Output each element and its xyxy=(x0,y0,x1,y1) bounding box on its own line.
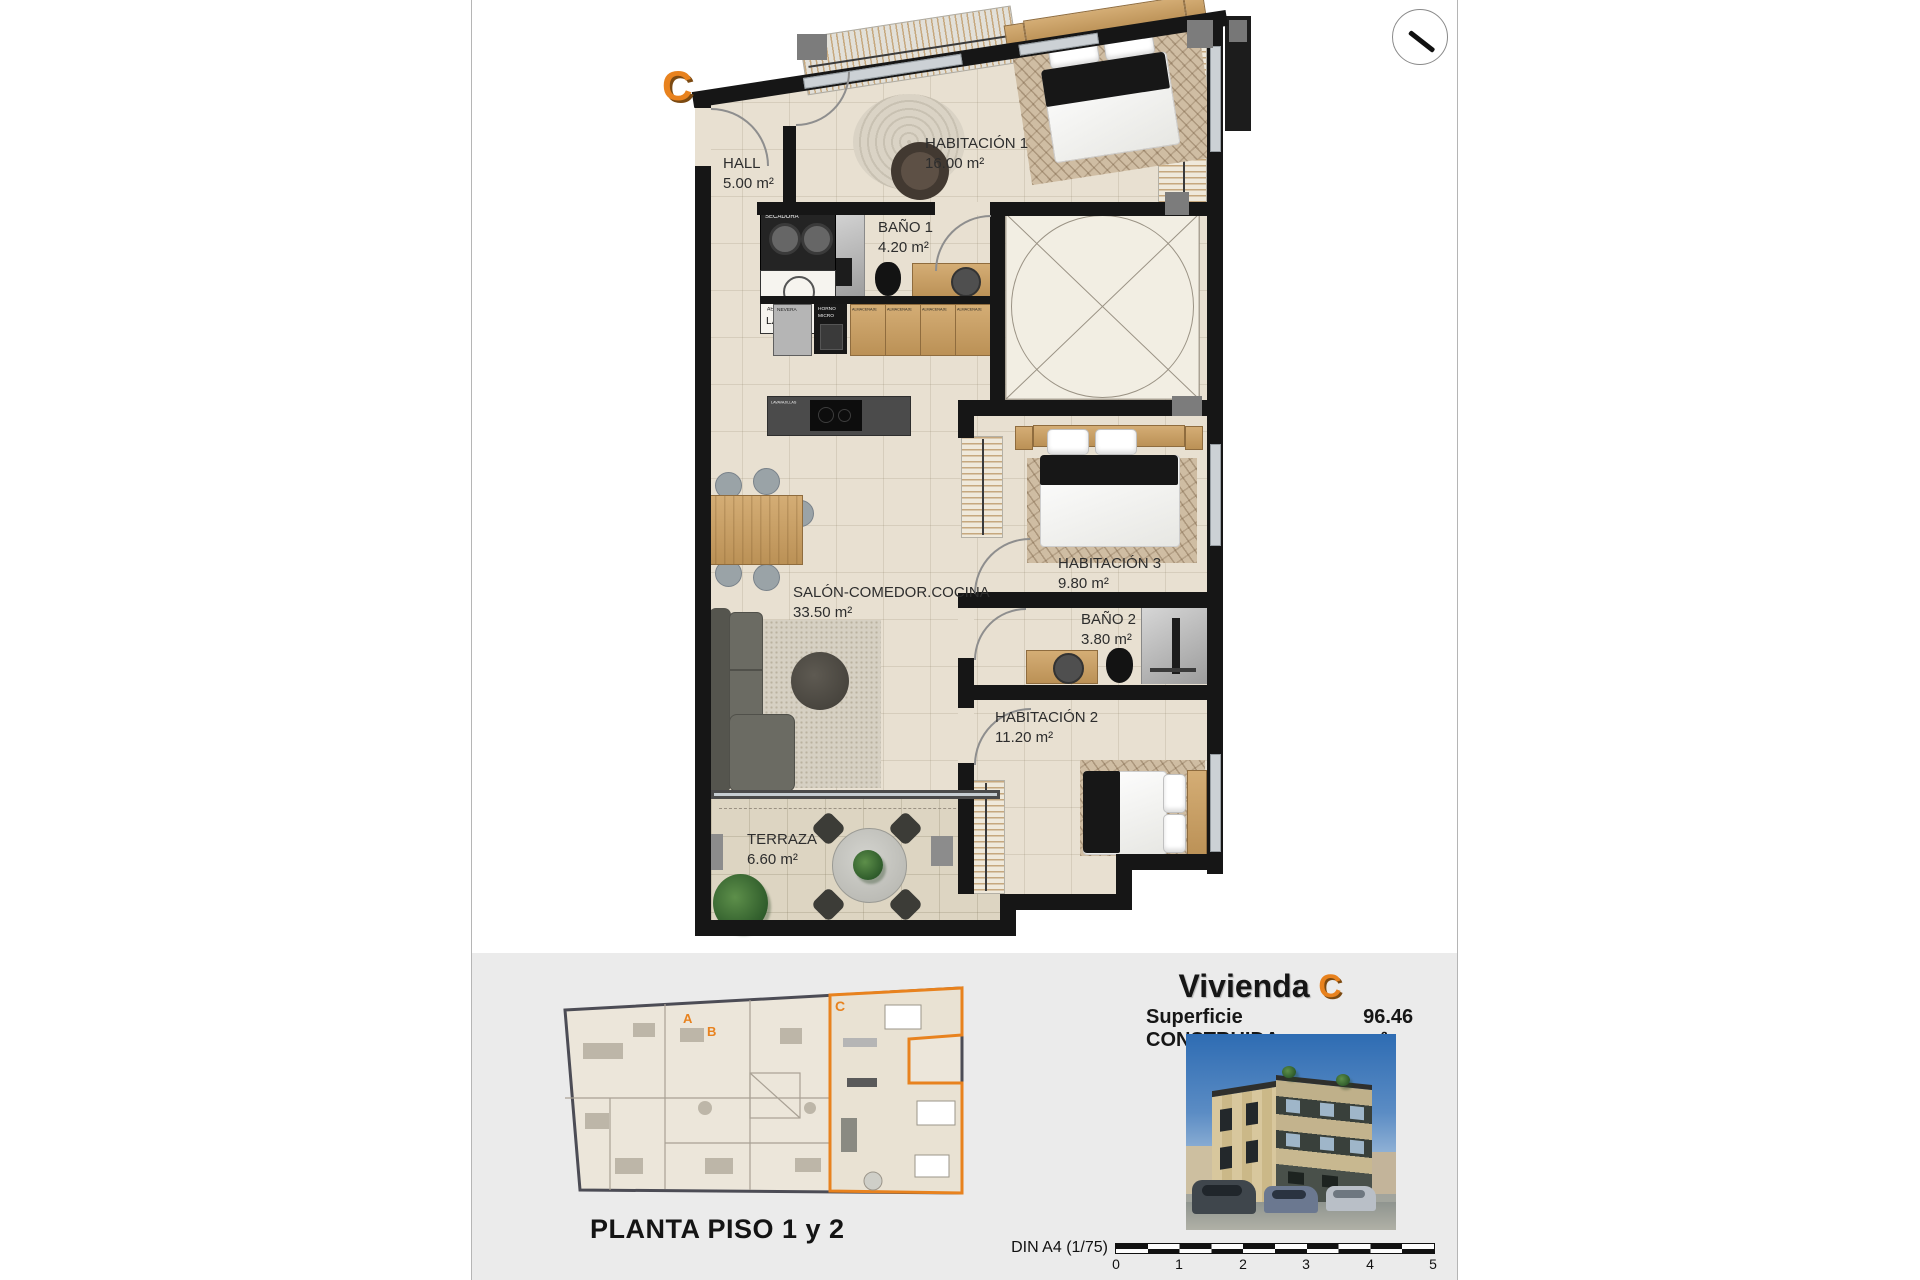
photo-window xyxy=(1246,1102,1258,1126)
table-plant xyxy=(853,850,883,880)
pillow xyxy=(1047,429,1089,455)
coffee-table xyxy=(791,652,849,710)
north-arrow-icon xyxy=(1392,9,1448,65)
photo-balcony-glass xyxy=(1350,1106,1364,1120)
oven-door xyxy=(820,324,843,350)
vivienda-title: Vivienda C xyxy=(1120,968,1400,1005)
storage-cabinet: ALMACENAJE xyxy=(850,304,886,356)
wall-right xyxy=(1207,16,1223,874)
room-label-bath2: BAÑO 2 3.80 m² xyxy=(1081,610,1136,650)
wall-bottom-right xyxy=(1116,854,1223,870)
fridge: NEVERA xyxy=(773,304,812,356)
photo-window xyxy=(1220,1146,1232,1170)
photo-balcony-glass xyxy=(1350,1140,1364,1154)
storage-label: ALMACENAJE xyxy=(852,308,877,312)
photo-balcony-glass xyxy=(1286,1133,1300,1147)
room-label-bedroom1: HABITACIÓN 1 16.00 m² xyxy=(925,134,1028,174)
terrace-glass-pane xyxy=(714,793,997,796)
wall-bath1-top xyxy=(757,202,935,215)
shower-bath2 xyxy=(1141,608,1208,684)
room-label-bedroom3: HABITACIÓN 3 9.80 m² xyxy=(1058,554,1161,594)
window-bedroom1-side xyxy=(1210,46,1221,152)
oven-label: HORNO xyxy=(818,307,836,313)
storage-label: ALMACENAJE xyxy=(887,308,912,312)
micro-label: MICRO xyxy=(818,314,834,320)
unit-letter-badge: C xyxy=(662,62,692,110)
blanket-bedroom2 xyxy=(1083,771,1120,853)
pillar-top xyxy=(797,34,827,60)
terrace-glass-wall xyxy=(711,790,1000,799)
scale-tick: 3 xyxy=(1296,1256,1316,1272)
wardrobe-rail xyxy=(985,783,987,891)
wall-step-2 xyxy=(1116,854,1132,910)
shower-drain xyxy=(1150,668,1196,672)
room-area: 3.80 m² xyxy=(1081,630,1136,650)
stair-core-outside xyxy=(1225,16,1251,131)
room-label-bedroom2: HABITACIÓN 2 11.20 m² xyxy=(995,708,1098,748)
scale-format-label: DIN A4 (1/75) xyxy=(992,1239,1108,1257)
dining-table xyxy=(705,495,803,565)
photo-window xyxy=(1288,1171,1304,1185)
toilet-bath1 xyxy=(875,262,901,296)
room-area: 11.20 m² xyxy=(995,728,1098,748)
scale-tick: 2 xyxy=(1233,1256,1253,1272)
sofa-chaise xyxy=(729,714,795,792)
vivienda-title-prefix: Vivienda xyxy=(1178,968,1309,1004)
pillar-patio-bottom xyxy=(1172,396,1202,416)
photo-roof-plant xyxy=(1282,1066,1296,1078)
scale-tick: 4 xyxy=(1360,1256,1380,1272)
wall-corridor-1 xyxy=(958,416,974,438)
overview-mini-plan: A B C xyxy=(555,983,975,1208)
room-name: HABITACIÓN 3 xyxy=(1058,554,1161,574)
photo-car-window xyxy=(1272,1190,1306,1199)
photo-car xyxy=(1192,1180,1256,1214)
room-name: HABITACIÓN 2 xyxy=(995,708,1098,728)
plan-sheet: C xyxy=(0,0,1920,1280)
photo-window xyxy=(1220,1108,1232,1132)
stair-landing xyxy=(1229,20,1247,42)
scale-bar xyxy=(1115,1243,1435,1254)
induction-hob xyxy=(810,400,862,431)
photo-balcony-glass xyxy=(1320,1137,1334,1151)
wall-kitchen-back xyxy=(760,296,995,304)
bath1-door-opening xyxy=(935,202,990,215)
photo-car-window xyxy=(1333,1190,1365,1198)
photo-roof-plant xyxy=(1336,1074,1350,1086)
nightstand xyxy=(1015,426,1033,450)
room-name: TERRAZA xyxy=(747,830,817,850)
headboard-bedroom2 xyxy=(1187,770,1207,858)
north-arrow-needle xyxy=(1408,30,1436,53)
patio-void-drawing xyxy=(1005,213,1200,400)
wall-kitchen-patio xyxy=(990,202,1005,416)
wall-corridor-4 xyxy=(958,763,974,894)
patio-void xyxy=(1005,213,1200,400)
terrace-overhang-dashed xyxy=(719,808,991,809)
dining-chair xyxy=(753,468,780,495)
page-border-right xyxy=(1457,0,1458,1280)
photo-balcony-glass xyxy=(1320,1103,1334,1117)
sink-bath2 xyxy=(1053,653,1084,684)
room-label-living: SALÓN-COMEDOR.COCINA 33.50 m² xyxy=(793,583,990,623)
storage-cabinet: ALMACENAJE xyxy=(885,304,921,356)
sofa-backrest xyxy=(709,608,731,792)
hob-ring xyxy=(818,407,834,423)
room-name: BAÑO 2 xyxy=(1081,610,1136,630)
vanity-bath2 xyxy=(1026,650,1098,684)
blanket-bedroom3 xyxy=(1040,455,1178,485)
overview-caption: PLANTA PISO 1 y 2 xyxy=(590,1214,845,1245)
room-name: HALL xyxy=(723,154,774,174)
washer-drum xyxy=(769,223,801,255)
overview-unit-c-label: C xyxy=(835,998,845,1014)
scale-tick: 0 xyxy=(1106,1256,1126,1272)
scale-tick: 5 xyxy=(1423,1256,1443,1272)
entry-door-opening xyxy=(695,108,711,166)
wardrobe-bedroom3 xyxy=(961,436,1003,538)
oven-micro: HORNO MICRO xyxy=(814,304,847,354)
pillow xyxy=(1163,774,1186,813)
storage-label: ALMACENAJE xyxy=(957,308,982,312)
wall-left xyxy=(695,100,711,936)
hob-ring xyxy=(838,409,851,422)
overview-unit-a-label: A xyxy=(683,1011,693,1026)
room-label-hall: HALL 5.00 m² xyxy=(723,154,774,194)
bedroom2-door-opening xyxy=(958,708,974,763)
pillar-patio-top xyxy=(1165,192,1189,215)
room-area: 9.80 m² xyxy=(1058,574,1161,594)
photo-car xyxy=(1326,1186,1376,1211)
vivienda-title-letter: C xyxy=(1318,968,1341,1004)
photo-window xyxy=(1246,1140,1258,1164)
sink-bath1 xyxy=(951,267,981,297)
wardrobe-rail xyxy=(982,439,984,535)
wall-hall-stub xyxy=(783,126,796,204)
room-name: HABITACIÓN 1 xyxy=(925,134,1028,154)
toilet-bath2 xyxy=(1106,648,1133,683)
room-label-terrace: TERRAZA 6.60 m² xyxy=(747,830,817,870)
room-area: 16.00 m² xyxy=(925,154,1028,174)
wall-bedroom1-bottom xyxy=(1005,202,1223,216)
wall-bottom-terrace xyxy=(695,920,1016,936)
overview-mini-plan-drawing: A B C xyxy=(555,983,975,1208)
storage-cabinet: ALMACENAJE xyxy=(920,304,956,356)
dishwasher-label: LAVAVAJILLAS xyxy=(771,401,796,405)
wall-step-1 xyxy=(1000,894,1016,936)
wall-bottom-middle xyxy=(1000,894,1132,910)
fridge-label: NEVERA xyxy=(777,308,797,314)
kitchen-island: LAVAVAJILLAS xyxy=(767,396,911,436)
pillow xyxy=(1163,814,1186,853)
photo-car xyxy=(1264,1186,1318,1213)
storage-cabinet: ALMACENAJE xyxy=(955,304,992,356)
room-area: 6.60 m² xyxy=(747,850,817,870)
nightstand xyxy=(1185,426,1203,450)
dryer-drum xyxy=(801,223,833,255)
storage-label: ALMACENAJE xyxy=(922,308,947,312)
terrace-planter-right xyxy=(931,836,953,866)
room-area: 33.50 m² xyxy=(793,603,990,623)
shower-column xyxy=(1172,618,1180,674)
terrace-planter-left xyxy=(711,834,723,870)
scale-tick: 1 xyxy=(1169,1256,1189,1272)
window-bedroom3 xyxy=(1210,444,1221,546)
room-name: BAÑO 1 xyxy=(878,218,933,238)
scale-bar-row xyxy=(1116,1249,1434,1254)
wall-bath2-bottom xyxy=(974,685,1223,700)
dryer-label: SECADORA xyxy=(765,214,799,221)
photo-balcony-glass xyxy=(1286,1099,1300,1113)
room-area: 4.20 m² xyxy=(878,238,933,258)
pillar-top-right xyxy=(1187,20,1213,48)
room-area: 5.00 m² xyxy=(723,174,774,194)
floor-plan: LAVADORA SECADORA AEROTERMIA LAVADO NEVE… xyxy=(695,8,1275,948)
photo-car-window xyxy=(1202,1185,1242,1196)
room-label-bath1: BAÑO 1 4.20 m² xyxy=(878,218,933,258)
wall-corridor-3 xyxy=(958,658,974,708)
overview-unit-b-label: B xyxy=(707,1024,716,1039)
pillow xyxy=(1095,429,1137,455)
room-name: SALÓN-COMEDOR.COCINA xyxy=(793,583,990,603)
dining-chair xyxy=(753,564,780,591)
window-bedroom2 xyxy=(1210,754,1221,852)
building-photo xyxy=(1186,1034,1396,1230)
wall-bedroom3-bottom xyxy=(974,592,1223,608)
